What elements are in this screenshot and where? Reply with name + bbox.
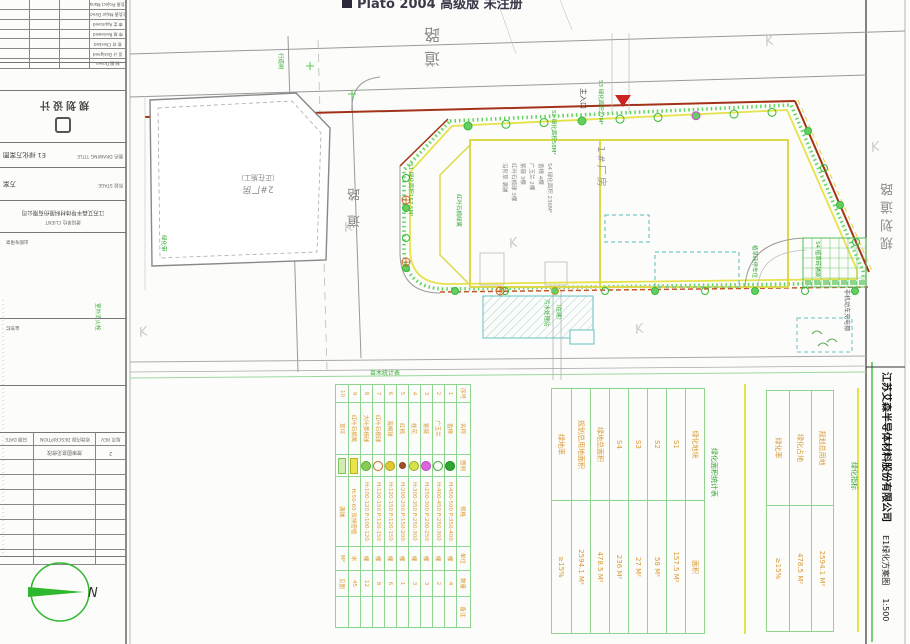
green-note: S4 植草砖铺装 <box>814 241 820 277</box>
building2-label: 2#厂房 （正在施工） <box>213 172 303 194</box>
logo-icon <box>55 117 71 133</box>
left-road-label: 道路 <box>346 148 365 228</box>
legend-symbol-icon <box>386 461 396 471</box>
watermark-text: Plato 2004 高级版 未注册 <box>357 0 523 12</box>
watermark: Plato 2004 高级版 未注册 <box>342 0 523 12</box>
stamp-note: 出图专用章 <box>6 238 29 243</box>
revision-table: 日期 DATE修改内容 DESCRIPTION版次 REV按审图意见修改2 <box>0 432 126 556</box>
legend-symbol-icon <box>446 461 456 471</box>
planning-index-table: 规划总用地2594.1 M²绿化占地478.5 M²绿化率≥15% <box>768 390 834 630</box>
legend-symbol-icon <box>399 462 406 469</box>
building1-label: 1#厂房 <box>595 146 610 189</box>
svg-text:K: K <box>634 321 647 338</box>
legend-symbol-icon <box>362 461 372 471</box>
stage-value: 方案 <box>3 180 16 188</box>
legend-symbol-icon <box>351 458 359 474</box>
legend-symbol-icon <box>374 461 384 471</box>
area-table-title: 绿化面积统计表 <box>709 448 717 497</box>
charging-shed-label: 非机动车充电棚 <box>843 289 852 331</box>
drawing-title-row: 图名 DRAWING TITLE E1 绿化方案图 <box>0 142 126 167</box>
client-label: 建设单位 CLIENT <box>45 219 80 224</box>
green-area-table: 绿化地块面积S1157.5 M²S258 M²S327 M²S4236 M²绿地… <box>553 388 705 632</box>
green-note: 污水处理站 <box>543 299 549 327</box>
green-note: S3 绿化面积27M² <box>597 80 603 125</box>
top-road-label: 道路 <box>330 24 440 72</box>
main-entrance-label: 主入口 <box>578 88 588 109</box>
legend-symbol-icon <box>410 461 420 471</box>
signature-role-label: 项目负责 Project Manager <box>90 1 126 7</box>
signature-role-label: 审 核 Reviewed <box>93 31 123 37</box>
green-note: （在建） <box>555 301 561 323</box>
stage-label: 阶段 STAGE <box>98 181 123 186</box>
sign-note: 会签栏 <box>6 324 20 329</box>
green-note: 红叶石楠绿篱 <box>455 194 461 227</box>
signature-grid: 项目负责 Project Manager专业负责 Major Director审… <box>0 0 126 62</box>
right-road-label: 规划道路 <box>879 178 898 250</box>
legend-table-title: 苗木统计表 <box>370 371 400 378</box>
green-note: S1 绿化面积157.5M² <box>407 163 413 216</box>
signature-role-label: 校 对 Checked <box>94 41 122 47</box>
client-row: 建设单位 CLIENT 江苏艾森半导体材料股份有限公司 <box>0 200 126 232</box>
signature-role-label: 审 定 Approved <box>93 21 123 27</box>
design-firm-logo: 规划设计 <box>0 90 126 142</box>
drawing-title-label: 图名 DRAWING TITLE <box>77 152 123 157</box>
index-table-title: 绿化指标 <box>849 462 857 490</box>
plant-legend-table: 序号名称图例规格单位数量备注1香樟H:450-500 P:350-400棵42广… <box>337 384 471 626</box>
frame-company: 江苏艾森半导体材料股份有限公司 <box>880 372 891 522</box>
north-compass: N <box>0 556 126 644</box>
stage-row: 阶段 STAGE 方案 <box>0 167 126 200</box>
green-note: S2 绿化面积58M² <box>550 110 556 155</box>
svg-text:K: K <box>764 33 777 50</box>
green-note: 植草砖停车位 <box>751 245 757 278</box>
signature-role-label: 设 计 Designed <box>93 51 122 57</box>
signature-role-label: 专业负责 Major Director <box>90 11 126 17</box>
green-note: 行道树 <box>277 53 283 70</box>
frame-title: 江苏艾森半导体材料股份有限公司 E1绿化方案图 1:500 <box>879 372 898 621</box>
client-value: 江苏艾森半导体材料股份有限公司 <box>22 209 105 217</box>
drawing-title-value: E1 绿化方案图 <box>3 151 46 159</box>
legend-symbol-icon <box>434 461 444 471</box>
svg-text:K: K <box>138 324 151 341</box>
frame-drawing-name: E1绿化方案图 <box>881 535 890 585</box>
title-block: 项目负责 Project Manager专业负责 Major Director审… <box>0 0 126 644</box>
app-window-icon <box>342 0 352 8</box>
north-label: N <box>88 586 98 601</box>
svg-text:K: K <box>870 139 883 156</box>
site-plan-sheet: K K K K K K Plato 2004 高级版 未注册 道路 道路 规划道… <box>0 0 910 644</box>
legend-symbol-icon <box>422 461 432 471</box>
green-note: 绿化带 <box>160 235 166 252</box>
building2-name: 2#厂房 <box>213 182 303 195</box>
frame-scale: 1:500 <box>881 598 890 621</box>
legend-symbol-icon <box>338 458 346 474</box>
logo-text: 规划设计 <box>37 99 89 114</box>
compass-needle <box>28 587 84 597</box>
building1-plant-notes: S4 绿化面积 236M²香樟 4棵广玉兰 2棵紫薇 3棵红叶石楠球 3棵沿阶草… <box>499 163 553 253</box>
building2-status: （正在施工） <box>213 172 303 182</box>
